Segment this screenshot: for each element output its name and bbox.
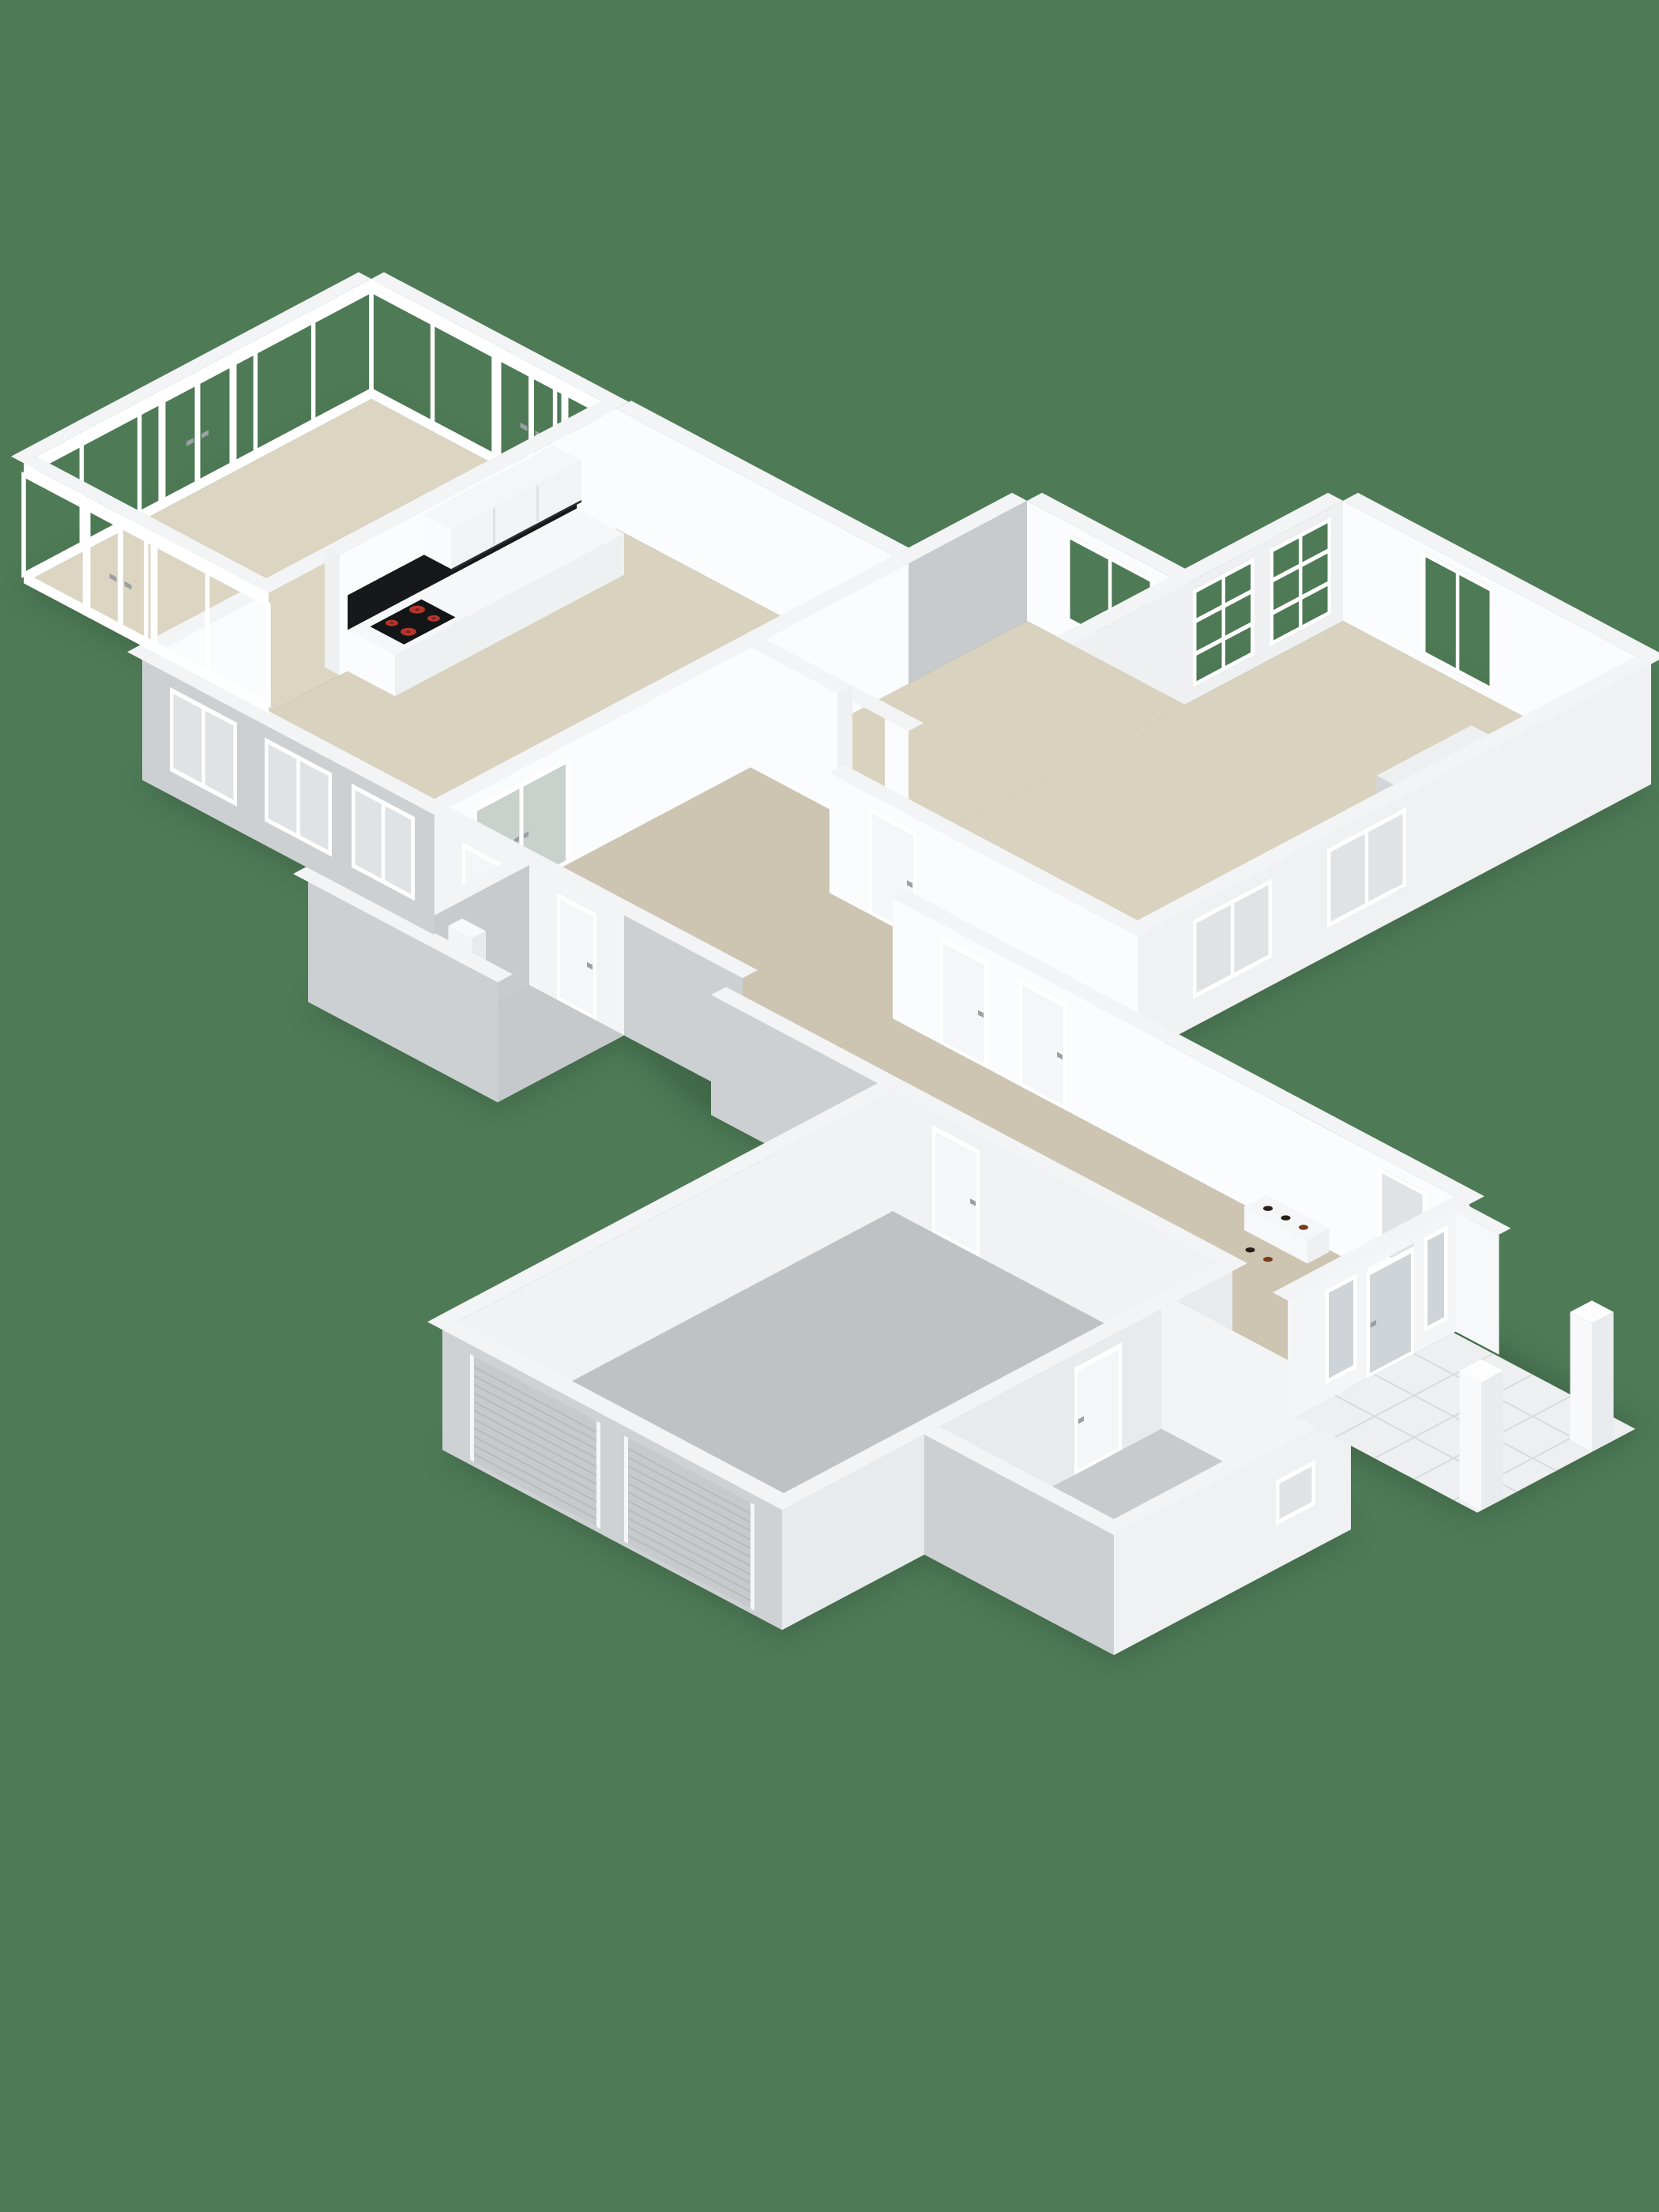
glass-wall-post — [137, 410, 142, 517]
door-panel — [560, 900, 593, 1015]
window-frame — [1422, 551, 1426, 656]
porch-pillar — [1481, 1371, 1503, 1510]
cabinet-seam — [493, 508, 495, 546]
window-frame — [1066, 532, 1070, 623]
french-door-stile — [195, 379, 201, 493]
window-frame — [1251, 558, 1255, 657]
window-frame — [1276, 1479, 1280, 1525]
burner-core — [432, 618, 436, 620]
glass-wall-post — [311, 318, 316, 424]
shoes — [1246, 1247, 1255, 1252]
garage-door-frame — [470, 1354, 474, 1462]
shoes — [1263, 1206, 1273, 1211]
kitchen-south-wall — [332, 761, 352, 891]
glass-wall-post — [21, 472, 25, 578]
porch-pillar — [1460, 1371, 1482, 1510]
window-frame — [1312, 1460, 1316, 1507]
corridor-north-wall — [987, 949, 1019, 1085]
window-frame — [1326, 1288, 1330, 1385]
kitchen-south-wall — [415, 804, 434, 935]
living-room-south-wall — [829, 773, 869, 914]
window-frame — [1444, 1225, 1448, 1322]
garage-front-wall — [442, 1330, 470, 1465]
glass-wall-post — [144, 536, 149, 643]
window-mullion — [1222, 576, 1226, 669]
garage-front-wall — [600, 1413, 624, 1546]
window-frame — [1193, 919, 1197, 999]
window-mullion — [1231, 901, 1235, 976]
glass-wall-post — [266, 601, 270, 708]
glass-wall-post — [254, 348, 258, 455]
front-wall — [1357, 1258, 1367, 1384]
front-wall — [1414, 1228, 1424, 1354]
burner-core — [390, 622, 394, 624]
french-door-frame — [159, 397, 166, 512]
porch-pillar — [1592, 1312, 1614, 1452]
window-frame — [1327, 848, 1331, 928]
burner-core — [406, 630, 411, 633]
garage-door-frame — [750, 1503, 754, 1611]
cabinet-seam — [536, 484, 539, 522]
corridor-north-wall — [893, 898, 940, 1044]
glass-wall-post — [205, 569, 210, 675]
garage-door-frame — [624, 1435, 628, 1544]
window-frame — [352, 784, 355, 869]
window-mullion — [1456, 572, 1460, 671]
window-frame — [1270, 547, 1274, 647]
french-door-stile — [118, 522, 123, 636]
window-frame — [1328, 517, 1332, 616]
french-door-frame — [151, 540, 158, 654]
window-mullion — [296, 758, 300, 837]
wc-north-wall — [596, 901, 624, 1036]
porch-pillar — [1571, 1312, 1593, 1452]
shoes — [1299, 1224, 1308, 1229]
window-frame — [329, 771, 333, 856]
window-mullion — [382, 803, 386, 882]
kitchen-south-wall — [237, 710, 265, 845]
window-glass — [1428, 1232, 1444, 1326]
floorplan-stage — [0, 0, 1659, 2212]
french-door-frame — [230, 359, 237, 474]
window-frame — [234, 721, 238, 807]
window-frame — [265, 738, 269, 823]
window-frame — [412, 815, 416, 901]
window-mullion — [201, 707, 205, 786]
front-wall — [1288, 1281, 1326, 1420]
window-mullion — [1365, 830, 1369, 905]
window-frame — [1269, 878, 1273, 959]
floor-plan-3d — [0, 0, 1659, 2212]
shoes — [1281, 1215, 1291, 1220]
wall-jamb — [325, 547, 340, 675]
garage-north-wall — [893, 1091, 932, 1232]
garage-door-frame — [596, 1421, 600, 1529]
window-frame — [1353, 1273, 1357, 1370]
living-room-west-wall — [1331, 501, 1343, 627]
window-mullion — [1299, 535, 1303, 628]
glass-wall-post — [369, 288, 374, 394]
shoes — [1263, 1257, 1273, 1262]
french-door-frame — [495, 353, 502, 468]
window-glass — [1329, 1280, 1353, 1378]
garage-front-wall — [754, 1495, 782, 1631]
window-frame — [1490, 586, 1494, 692]
living-room-west-wall — [1255, 540, 1270, 668]
window-frame — [1403, 807, 1407, 888]
french-door-frame — [84, 504, 91, 619]
porch-side-wall — [1456, 1212, 1499, 1355]
window-frame — [170, 687, 174, 773]
window-frame — [1193, 588, 1197, 687]
glass-wall-post — [431, 320, 435, 427]
burner-core — [415, 608, 419, 611]
kitchen-south-wall — [142, 660, 170, 795]
middle-room-north-wall — [1027, 501, 1066, 642]
window-frame — [1424, 1236, 1428, 1332]
